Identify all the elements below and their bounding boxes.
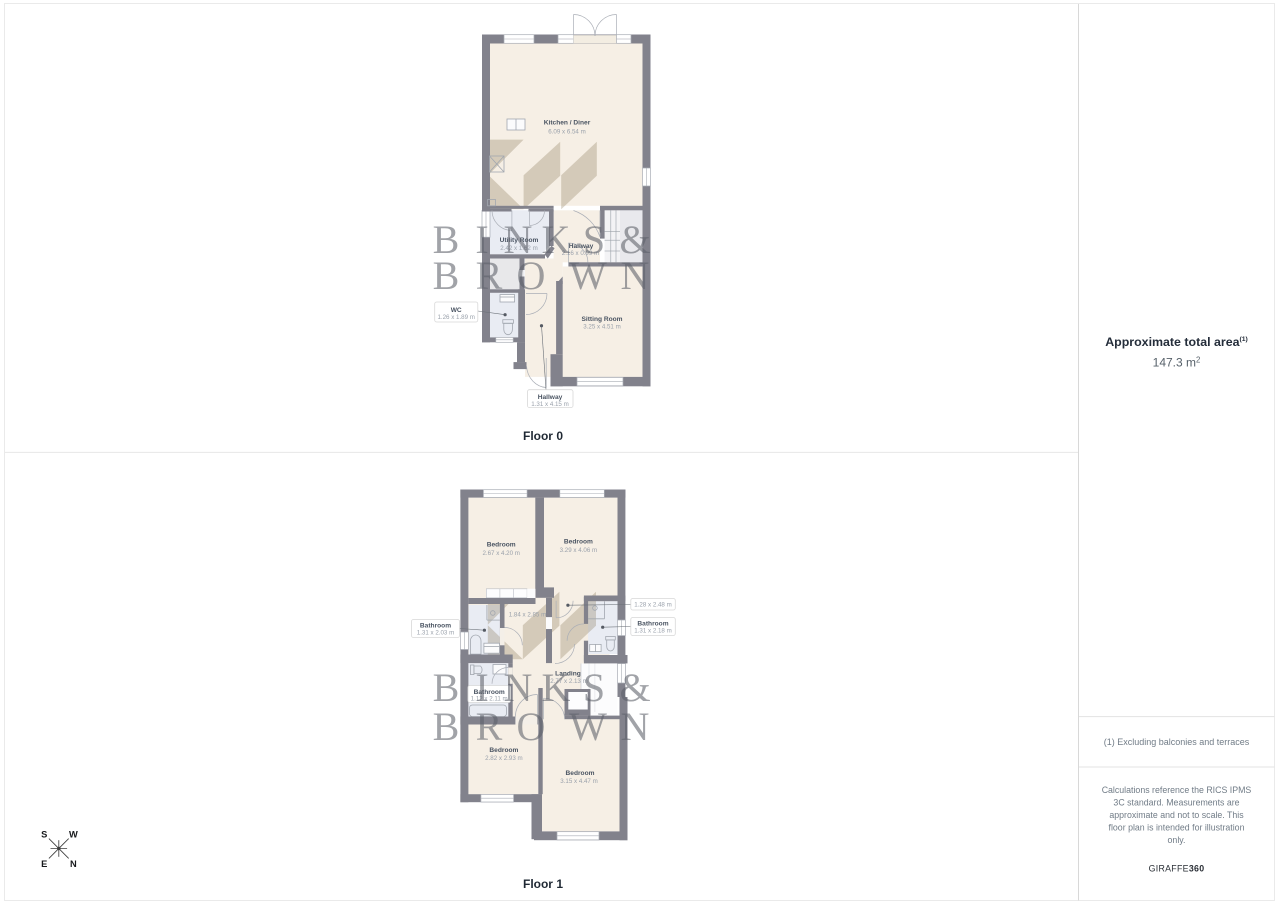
svg-text:Bathroom: Bathroom (420, 623, 451, 630)
svg-text:S: S (41, 830, 47, 840)
svg-text:E: E (41, 859, 47, 869)
svg-text:(1) Excluding balconies and te: (1) Excluding balconies and terraces (1104, 737, 1250, 747)
svg-text:1.31 x 2.03 m: 1.31 x 2.03 m (417, 630, 455, 637)
svg-text:WC: WC (451, 307, 462, 314)
svg-text:1.28 x 2.48 m: 1.28 x 2.48 m (634, 602, 672, 609)
svg-text:Kitchen / Diner: Kitchen / Diner (544, 120, 591, 127)
svg-text:Sitting Room: Sitting Room (581, 316, 622, 323)
svg-text:N: N (621, 253, 650, 298)
svg-text:3.15 x 4.47 m: 3.15 x 4.47 m (560, 778, 598, 785)
svg-text:Bedroom: Bedroom (566, 770, 595, 777)
svg-text:1.26 x 1.89 m: 1.26 x 1.89 m (437, 314, 475, 321)
svg-text:N: N (621, 704, 650, 749)
svg-text:Bathroom: Bathroom (637, 621, 668, 628)
svg-text:floor plan is intended for ill: floor plan is intended for illustration (1109, 823, 1245, 833)
svg-text:1.31 x 2.18 m: 1.31 x 2.18 m (634, 628, 672, 635)
svg-text:only.: only. (1168, 835, 1186, 845)
svg-text:Bedroom: Bedroom (564, 539, 593, 546)
svg-text:Bedroom: Bedroom (487, 542, 516, 549)
svg-text:Floor 1: Floor 1 (523, 877, 563, 891)
svg-text:Floor 0: Floor 0 (523, 429, 563, 443)
svg-text:Approximate total area(1): Approximate total area(1) (1105, 335, 1248, 349)
svg-text:O: O (517, 253, 546, 298)
svg-text:3.25 x 4.51 m: 3.25 x 4.51 m (583, 324, 621, 331)
svg-text:approximate and not to scale.: approximate and not to scale. This (1109, 810, 1244, 820)
svg-text:R: R (476, 253, 503, 298)
svg-text:K: K (542, 665, 571, 710)
svg-text:147.3 m2: 147.3 m2 (1153, 356, 1201, 370)
svg-text:W: W (69, 830, 78, 840)
svg-text:B: B (433, 704, 460, 749)
svg-text:2.67 x 4.20 m: 2.67 x 4.20 m (482, 550, 520, 557)
svg-text:3.29 x 4.06 m: 3.29 x 4.06 m (560, 547, 598, 554)
svg-text:Calculations reference the RIC: Calculations reference the RICS IPMS (1102, 785, 1252, 795)
svg-text:W: W (569, 704, 607, 749)
svg-text:N: N (70, 859, 77, 869)
svg-text:1.84 x 2.85 m: 1.84 x 2.85 m (509, 612, 547, 619)
svg-text:R: R (476, 704, 503, 749)
svg-text:1.31 x 4.15 m: 1.31 x 4.15 m (531, 401, 569, 408)
svg-text:B: B (433, 253, 460, 298)
svg-text:O: O (517, 704, 546, 749)
svg-text:3C standard. Measurements are: 3C standard. Measurements are (1113, 798, 1239, 808)
svg-text:2.82 x 2.93 m: 2.82 x 2.93 m (485, 755, 523, 762)
svg-text:W: W (569, 253, 607, 298)
svg-text:GIRAFFE360: GIRAFFE360 (1149, 864, 1205, 874)
svg-text:6.09 x 6.54 m: 6.09 x 6.54 m (548, 129, 586, 136)
svg-text:K: K (542, 217, 571, 262)
svg-text:Hallway: Hallway (538, 394, 563, 401)
